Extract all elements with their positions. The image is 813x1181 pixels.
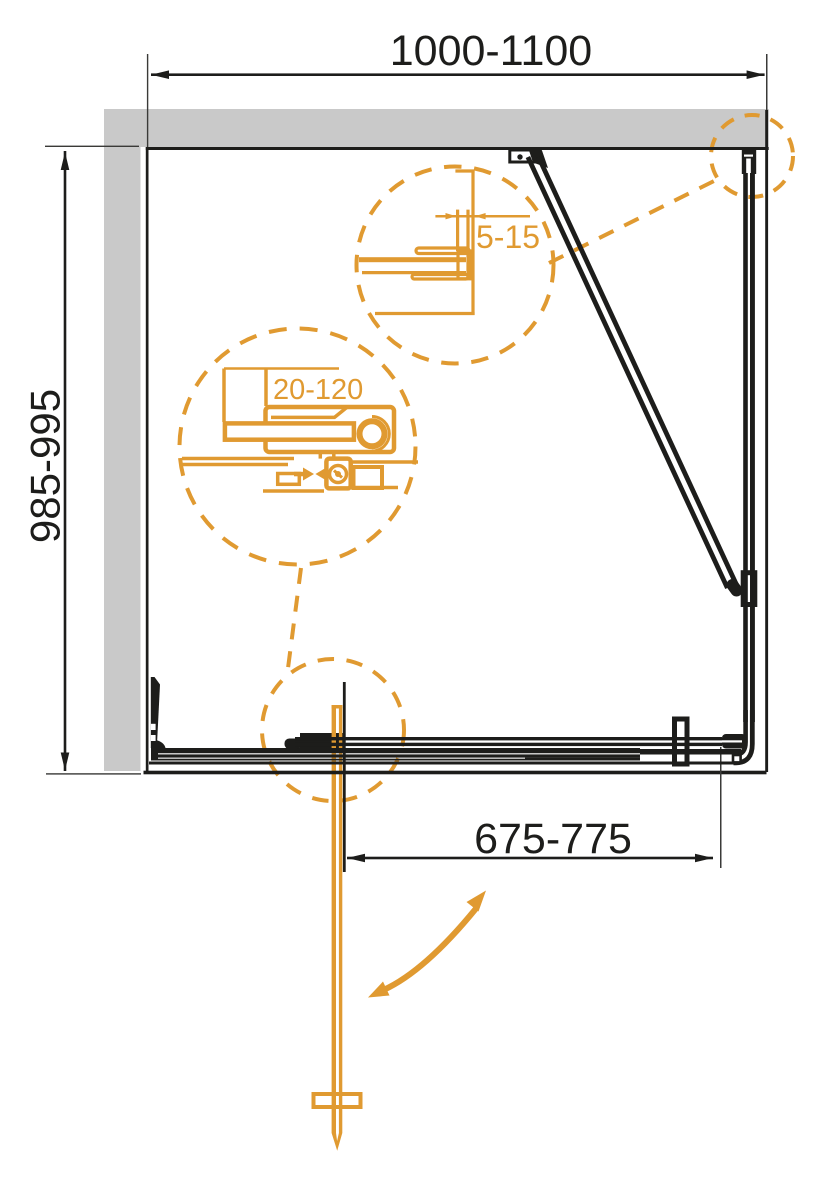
svg-text:1000-1100: 1000-1100 bbox=[390, 27, 592, 75]
svg-text:985-995: 985-995 bbox=[22, 389, 69, 543]
svg-text:5-15: 5-15 bbox=[476, 219, 540, 255]
svg-text:20-120: 20-120 bbox=[273, 374, 363, 406]
svg-text:675-775: 675-775 bbox=[474, 815, 632, 863]
